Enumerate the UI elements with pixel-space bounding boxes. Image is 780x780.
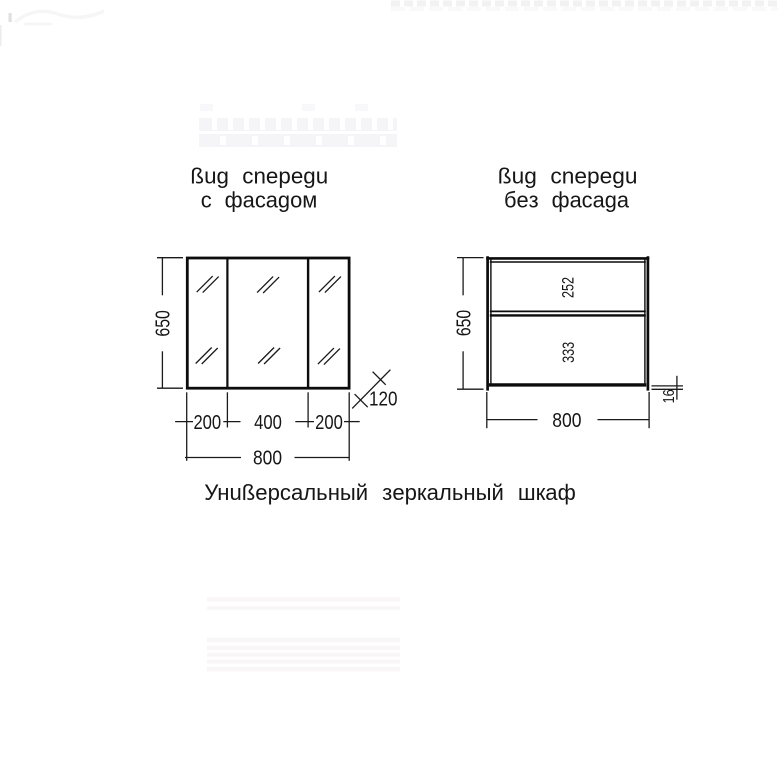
svg-text:16: 16 xyxy=(661,389,678,403)
svg-text:ßug cnepegu: ßug cnepegu xyxy=(498,163,638,188)
svg-text:252: 252 xyxy=(560,277,578,298)
svg-text:бeз фacaga: бeз фacaga xyxy=(504,187,630,212)
svg-text:200: 200 xyxy=(315,411,343,434)
svg-text:650: 650 xyxy=(452,310,475,336)
svg-text:c фacagoм: c фacagoм xyxy=(201,187,318,212)
svg-text:800: 800 xyxy=(552,409,581,432)
svg-text:Унußepcaльный зepкaльный шкa: Унußepcaльный зepкaльный шкaф xyxy=(204,480,576,505)
svg-text:200: 200 xyxy=(193,411,221,434)
svg-text:120: 120 xyxy=(369,387,398,410)
svg-text:800: 800 xyxy=(253,447,282,470)
svg-text:ßug cnepegu: ßug cnepegu xyxy=(190,163,328,188)
svg-text:400: 400 xyxy=(254,411,282,434)
svg-text:333: 333 xyxy=(560,342,578,363)
svg-text:650: 650 xyxy=(152,310,175,336)
